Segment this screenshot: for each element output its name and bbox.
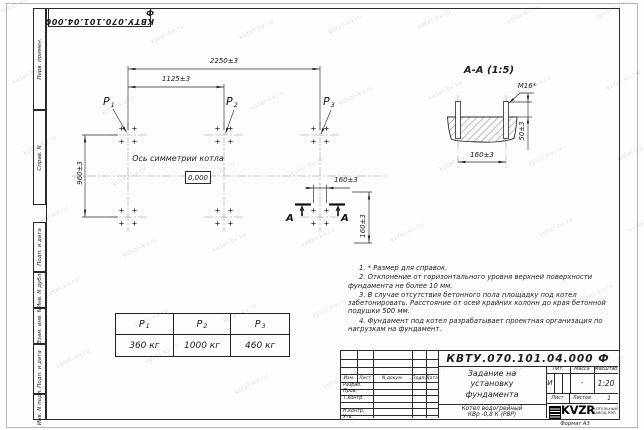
rev-col-ndocum: N докум. (373, 374, 412, 382)
sidebar-label: Инв. N подл. (37, 389, 43, 425)
sidebar-cell-podp-data-2: Подп. и дата (33, 344, 46, 394)
load-table-header-p2: P2 (174, 314, 232, 335)
scale-value: 1:20 (594, 373, 618, 393)
rev-col-izm: Изм. (341, 374, 357, 382)
lit-value: И (546, 373, 554, 393)
kvzr-logo-caption: КОТЕЛЬНЫЙ ЗАВОД РЭП (593, 407, 618, 416)
note-2: 2. Отклонение от горизонтального уровня … (348, 273, 610, 290)
scale-label: Масштаб (594, 366, 618, 373)
level-mark-box: 0,000 (185, 171, 211, 184)
sidebar-label: Подп. и дата (37, 350, 43, 387)
note-3: 3. В случае отсутствия бетонного пола пл… (348, 291, 610, 316)
dim-section-bolt-spacing: 160±3 (462, 151, 502, 159)
load-point-label-p2: P2 (226, 95, 238, 108)
sidebar-cell-inv-dubl: Инв. N дубл. (33, 272, 46, 308)
lit-label: Лит. (546, 366, 570, 373)
load-value-p1: 360 кг (116, 335, 174, 356)
top-stamp-box: КВТУ.070.101.04.000 Ф (48, 8, 151, 27)
rev-col-data: Дата (426, 374, 438, 382)
section-letter-right: А (341, 213, 349, 224)
section-view-title: А-А (1:5) (449, 65, 529, 76)
sidebar-cell-inv-podl: Инв. N подл. (33, 394, 46, 420)
mass-label: Масса (570, 366, 594, 373)
rev-col-podp: Подп. (412, 374, 426, 382)
rev-col-list: Лист (357, 374, 373, 382)
axis-of-symmetry-label: Ось симметрии котла (118, 154, 238, 163)
load-table: P1 P2 P3 360 кг 1000 кг 460 кг (115, 313, 290, 357)
bolt-thread-label: М16* (512, 82, 542, 90)
note-1: 1. * Размер для справок. (348, 264, 610, 272)
dim-bolt-spacing-v: 160±3 (359, 210, 367, 242)
sheets-label: Листов (571, 393, 599, 403)
load-table-header-p1: P1 (116, 314, 174, 335)
notes-block: 1. * Размер для справок. 2. Отклонение о… (348, 264, 610, 334)
load-point-label-p3: P3 (323, 95, 335, 108)
sidebar-label: Взам. инв. N (37, 308, 43, 344)
drawing-sheet: kotel-kv.rukotel-kv.rukotel-kv.rukotel-k… (0, 0, 644, 430)
sidebar-label: Перв. примен. (37, 38, 43, 79)
note-4: 4. Фундамент под котел разрабатывает про… (348, 317, 610, 334)
product-name-line-2: КВр -0,8 К (РВР) (438, 412, 546, 419)
format-label: Формат А3 (535, 421, 615, 427)
sidebar-cell-perv-primen: Перв. примен. (33, 8, 46, 110)
top-stamp-number: КВТУ.070.101.04.000 Ф (49, 9, 150, 26)
sheet-label: Лист (546, 393, 569, 403)
dim-bolt-protrusion: 50±3 (518, 116, 526, 146)
sidebar-cell-podp-data-1: Подп. и дата (33, 222, 46, 272)
dim-total-width: 2250±3 (194, 57, 254, 65)
mass-value: - (570, 373, 594, 393)
load-value-p3: 460 кг (231, 335, 289, 356)
sidebar-label: Инв. N дубл. (37, 272, 43, 308)
kvzr-logo-icon (549, 406, 561, 419)
dim-bolt-spacing-h: 160±3 (326, 176, 366, 184)
dim-height: 960±3 (76, 157, 84, 189)
sidebar-label: Подп. и дата (37, 228, 43, 265)
title-block: КВТУ.070.101.04.000 Ф Изм. Лист N докум.… (340, 350, 620, 420)
sheets-value: 1 (601, 393, 617, 403)
sidebar-cell-sprav-n: Справ. N (33, 110, 46, 205)
sidebar-cell-vzam-inv: Взам. инв. N (33, 308, 46, 344)
load-table-header-p3: P3 (231, 314, 289, 335)
doc-number: КВТУ.070.101.04.000 Ф (438, 351, 618, 366)
kvzr-logo-text: KVZR (561, 403, 595, 417)
dim-half-width: 1125±3 (146, 75, 206, 83)
load-point-label-p1: P1 (103, 95, 115, 108)
sidebar-label: Справ. N (37, 145, 43, 170)
load-value-p2: 1000 кг (174, 335, 232, 356)
doc-title-line-3: фундамента (438, 388, 546, 400)
sign-row-utv: Утв. (341, 415, 373, 422)
level-mark: 0,000 (188, 174, 208, 182)
section-letter-left: А (286, 213, 294, 224)
